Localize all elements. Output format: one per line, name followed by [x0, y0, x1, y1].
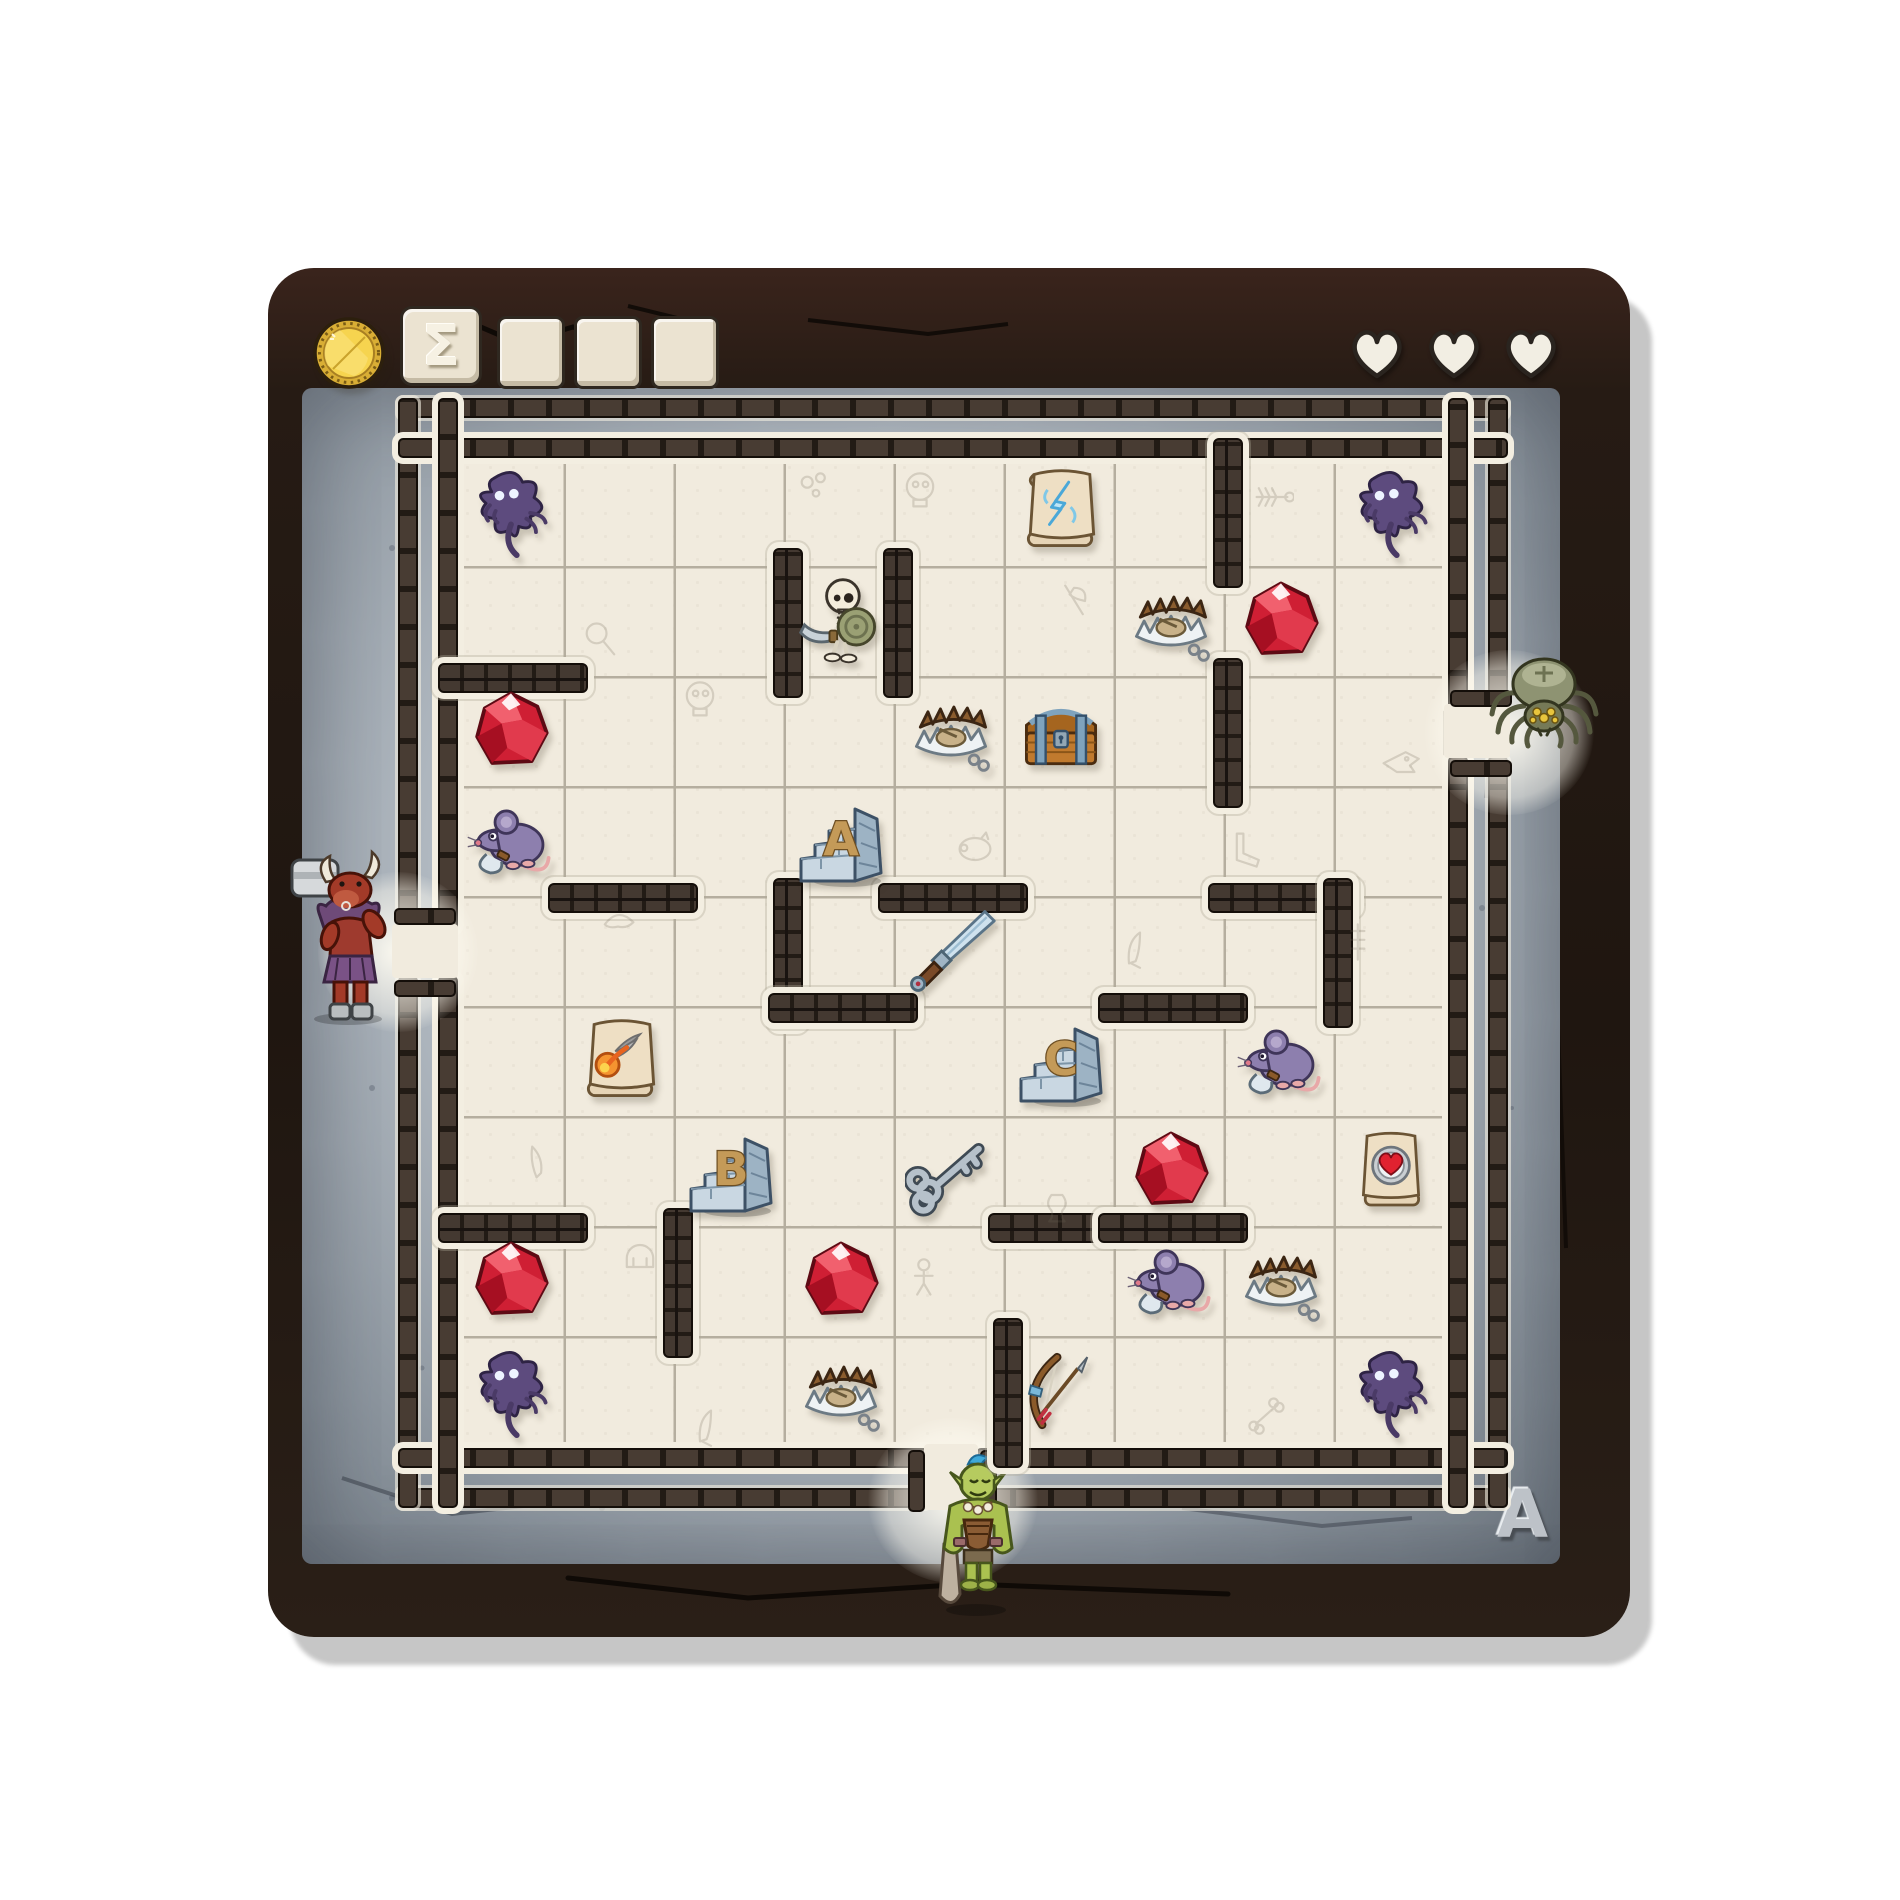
- heart-icon[interactable]: [1425, 324, 1483, 380]
- sigma-label: Σ: [422, 314, 460, 379]
- game-board-page: A Σ: [0, 0, 1900, 1900]
- blank-rune-tile[interactable]: [651, 316, 719, 389]
- heart-icon[interactable]: [1348, 324, 1406, 380]
- sigma-tile[interactable]: Σ: [400, 306, 482, 386]
- blank-rune-tile[interactable]: [574, 316, 642, 389]
- blank-rune-tile[interactable]: [497, 316, 565, 389]
- coin-icon[interactable]: [312, 316, 386, 390]
- heart-icon[interactable]: [1502, 324, 1560, 380]
- maze-field[interactable]: [456, 456, 1446, 1446]
- board-corner-label: A: [1497, 1476, 1549, 1553]
